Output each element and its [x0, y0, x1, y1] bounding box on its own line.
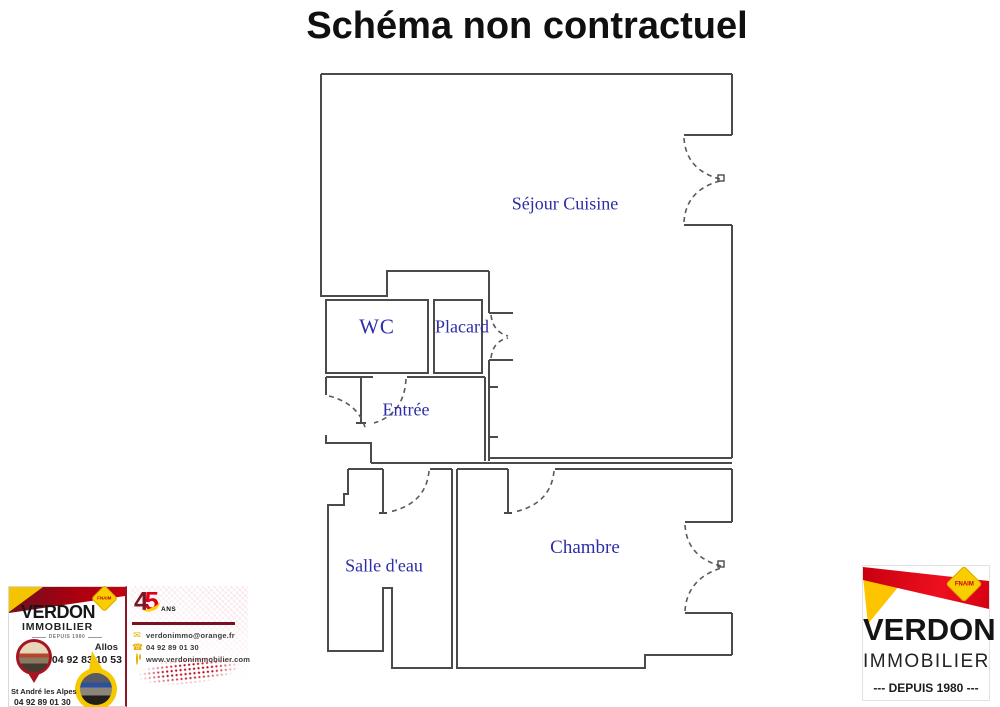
room-label-placard: Placard [435, 317, 489, 338]
contact-row-email: ✉ verdonimmo@orange.fr [132, 631, 250, 640]
storefront-photo [80, 673, 112, 705]
office-phone-st-andre: 04 92 89 01 30 [14, 697, 71, 707]
fnaim-label: FNAIM [955, 581, 974, 587]
decorative-dash [88, 637, 102, 638]
decorative-dash [32, 637, 46, 638]
room-label-entree: Entrée [383, 400, 430, 421]
agency-contact-block: 45 ANS ✉ verdonimmo@orange.fr ☎ 04 92 89… [130, 586, 248, 707]
contact-row-phone: ☎ 04 92 89 01 30 [132, 643, 250, 652]
fnaim-label: FNAIM [97, 596, 111, 601]
agency-brand-subtitle: IMMOBILIER [863, 651, 989, 673]
page: Schéma non contractuel [0, 0, 1000, 707]
location-pin-photo-allos [16, 639, 52, 675]
walls [321, 74, 732, 668]
phone-icon: ☎ [132, 643, 142, 652]
office-phone-allos: 04 92 83 10 53 [52, 654, 122, 666]
room-label-wc: WC [359, 315, 395, 340]
room-label-salle-deau: Salle d'eau [345, 556, 423, 577]
agency-card-right: FNAIM VERDON IMMOBILIER --- DEPUIS 1980 … [862, 565, 990, 701]
contact-email: verdonimmo@orange.fr [146, 631, 235, 640]
agency-brand-name: VERDON [863, 612, 989, 648]
drop-marker-photo-st-andre [75, 668, 117, 707]
agency-brand-name: VERDON [21, 602, 95, 623]
envelope-icon: ✉ [132, 631, 142, 640]
room-label-sejour-cuisine: Séjour Cuisine [512, 194, 619, 215]
agency-brand-subtitle: IMMOBILIER [22, 621, 93, 633]
divider-rule [132, 622, 235, 625]
agency-since: DEPUIS 1980 [9, 634, 125, 640]
window-center-markers [718, 175, 724, 567]
location-pin-tail [28, 673, 40, 683]
office-city-st-andre: St André les Alpes [11, 687, 77, 696]
agency-since: --- DEPUIS 1980 --- [863, 681, 989, 695]
agency-card-left: FNAIM VERDON IMMOBILIER DEPUIS 1980 Allo… [8, 586, 127, 707]
anniversary-45-ans-logo: 45 ANS [134, 586, 159, 617]
contact-phone: 04 92 89 01 30 [146, 643, 199, 652]
room-label-chambre: Chambre [550, 537, 620, 559]
